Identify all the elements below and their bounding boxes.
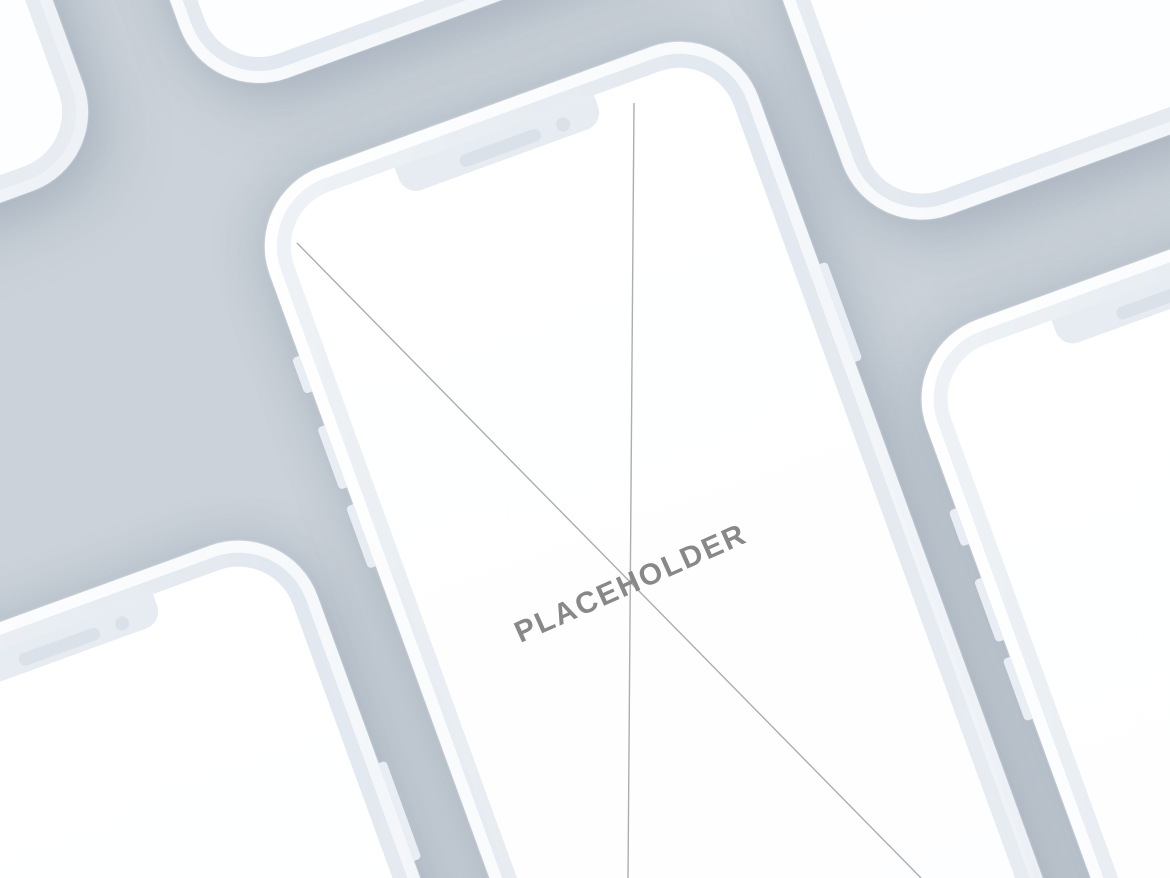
mute-switch	[949, 508, 970, 546]
mockup-scene: PLACEHOLDER	[0, 0, 1170, 878]
camera-dot-icon	[554, 116, 572, 134]
phone-screen	[0, 0, 78, 307]
phone-mockup-far-left	[0, 0, 112, 340]
camera-dot-icon	[113, 614, 131, 632]
mute-switch	[292, 356, 313, 394]
